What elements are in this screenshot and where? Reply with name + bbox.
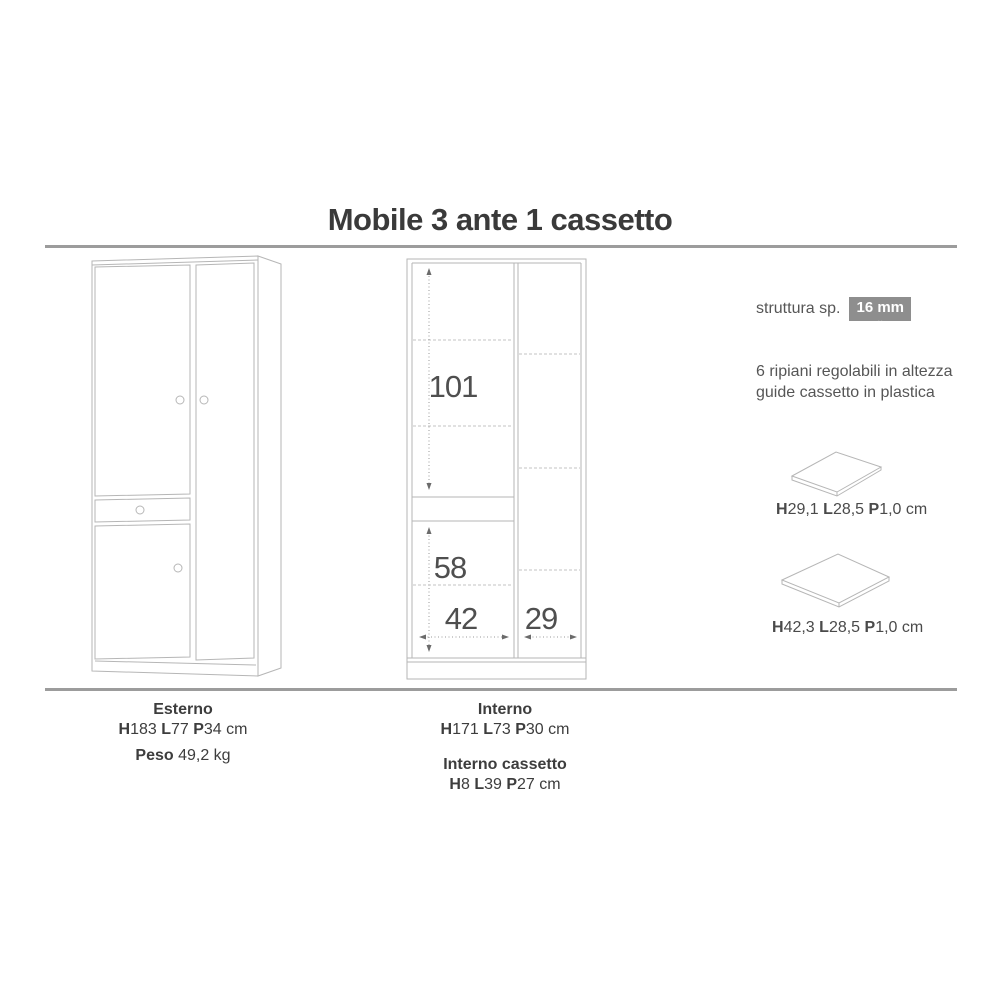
note-drawer-guides: guide cassetto in plastica xyxy=(756,382,953,403)
cabinet-interior-drawing: 101 58 42 29 xyxy=(407,259,586,679)
interior-dimensions-block: Interno H171 L73 P30 cm Interno cassetto… xyxy=(380,701,630,794)
furniture-drawings: 101 58 42 29 xyxy=(0,0,1000,1000)
exterior-dimensions: H183 L77 P34 cm xyxy=(58,721,308,739)
weight-line: Peso 49,2 kg xyxy=(58,747,308,765)
structure-thickness-badge: 16 mm ↔ xyxy=(849,297,911,321)
shelf-large-drawing xyxy=(782,554,889,607)
dim-left-width: 42 xyxy=(445,601,477,636)
structure-thickness-label: struttura sp. xyxy=(756,300,840,318)
exterior-dimensions-block: Esterno H183 L77 P34 cm Peso 49,2 kg xyxy=(58,701,308,765)
structure-thickness-value: 16 mm xyxy=(856,299,904,316)
structure-thickness-row: struttura sp. 16 mm ↔ xyxy=(756,297,911,321)
interior-heading: Interno xyxy=(380,701,630,719)
drawer-interior-dimensions: H8 L39 P27 cm xyxy=(380,776,630,794)
dim-upper-height: 101 xyxy=(429,369,478,404)
interior-dimensions: H171 L73 P30 cm xyxy=(380,721,630,739)
exterior-heading: Esterno xyxy=(58,701,308,719)
dim-right-width: 29 xyxy=(525,601,557,636)
drawer-interior-heading: Interno cassetto xyxy=(380,756,630,774)
shelf-small-drawing xyxy=(792,452,881,496)
cabinet-exterior-drawing xyxy=(92,256,281,676)
shelf-large-dimensions: H42,3 L28,5 P1,0 cm xyxy=(772,619,923,637)
thickness-arrow-icon: ↔ xyxy=(849,316,911,325)
technical-sheet: Mobile 3 ante 1 cassetto xyxy=(0,0,1000,1000)
features-notes: 6 ripiani regolabili in altezza guide ca… xyxy=(756,361,953,403)
shelf-small-dimensions: H29,1 L28,5 P1,0 cm xyxy=(776,501,927,519)
note-shelves: 6 ripiani regolabili in altezza xyxy=(756,361,953,382)
dim-lower-height: 58 xyxy=(434,550,466,585)
